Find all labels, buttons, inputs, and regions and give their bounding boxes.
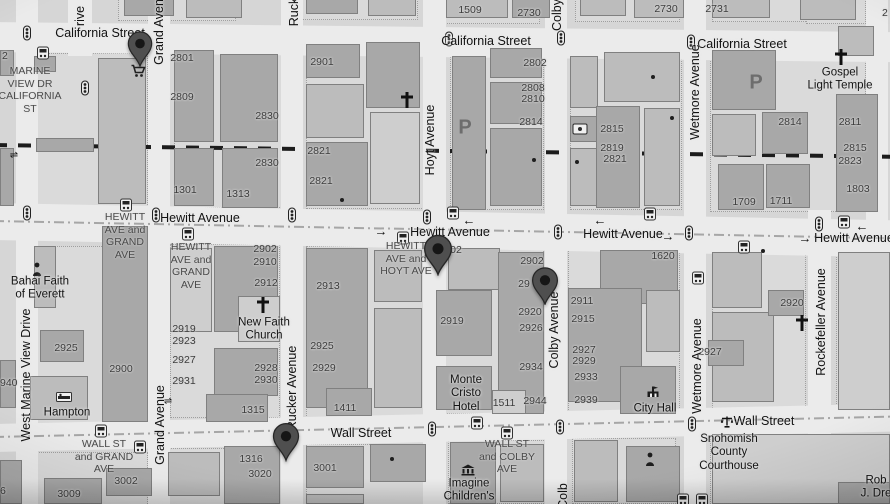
building-label: 1711 [770,195,793,207]
building [36,138,94,152]
building [800,0,856,20]
building-label: 2931 [172,375,195,387]
bus-stop-icon[interactable] [696,494,708,504]
building-label: 2815 [843,142,866,154]
map-canvas[interactable]: California StreetCalifornia StreetCalifo… [0,0,890,504]
building [0,460,22,504]
poi-label-line: Bahai Faith [11,276,69,289]
building-label: 2811 [839,116,862,128]
area-label-line: HEWITT [171,241,212,254]
building [580,0,626,16]
building-label: 2730 [654,3,677,15]
building [220,54,278,142]
building [570,148,598,206]
street-label: Rucker Avenue [285,346,299,431]
building-label: 2830 [255,157,278,169]
street-label: Wall Street [734,414,795,428]
church-cross-icon[interactable] [400,91,414,109]
poi-label-line: Hampton [44,406,91,419]
building-label: 1313 [226,188,249,200]
poi-label: New FaithChurch [238,317,290,344]
poi-label: RobJ. Dre [861,475,890,502]
poi-label-line: Children's [444,491,495,504]
building-label: 3001 [313,462,336,474]
poi-label-line: Rob [861,475,890,488]
area-label-line: WALL ST [479,438,535,451]
building-label: 2821 [309,175,332,187]
street-label: California Street [441,34,531,48]
street-label: rive [73,6,87,26]
traffic-light-icon [423,210,431,225]
building-label: 2810 [521,93,544,105]
poi-label-line: Light Temple [808,80,873,93]
building-label: 1315 [241,404,264,416]
building-label: 2929 [312,362,335,374]
traffic-light-icon [152,208,160,223]
building-label: 2814 [778,116,801,128]
poi-label-line: Hotel [450,401,482,414]
poi-label: Bahai Faithof Everett [11,276,69,303]
traffic-light-icon [288,208,296,223]
building-label: 2925 [310,340,333,352]
dot-icon [651,75,656,80]
bus-stop-icon[interactable] [37,47,49,60]
area-label-line: CALIFORNIA [0,90,62,103]
poi-label-line: J. Dre [861,488,890,501]
building-label: 2802 [523,57,546,69]
poi-label-line: Cristo [450,387,482,400]
poi-label: ImagineChildren's [444,478,495,504]
building-label: 2 [882,7,888,19]
area-label-line: AVE and [171,253,212,266]
area-label: MARINEVIEW DRCALIFORNIAST [0,65,62,115]
poi-label-line: Imagine [444,478,495,491]
area-label-line: and COLBY [479,451,535,464]
poi-label-line: Church [238,330,290,343]
parking-label: P [749,72,762,95]
building-label: 2925 [54,342,77,354]
building-label: 2915 [571,313,594,325]
building [712,50,776,110]
person-icon[interactable] [645,452,656,466]
area-label-line: ST [0,103,62,116]
building [374,308,422,408]
poi-label: City Hall [634,402,677,415]
building [370,112,420,204]
building-label: 2934 [519,361,542,373]
building-label: 1509 [458,4,481,16]
building [644,108,680,206]
building-label: 1620 [651,250,674,262]
building-label: 1803 [846,183,869,195]
city-hall-icon[interactable] [646,385,661,398]
poi-label-line: Snohomish [699,433,758,446]
area-label-line: WALL ST [75,438,133,451]
church-cross-icon[interactable] [834,48,848,66]
arrow-icon: → [662,230,675,243]
area-label-line: AVE [171,279,212,292]
bus-stop-icon[interactable] [838,216,850,229]
street-label: Rockefeller Avenue [814,268,828,375]
building-label: 2910 [253,256,276,268]
building-label: 2912 [254,277,277,289]
building-label: 1316 [239,453,262,465]
street-label: California Street [697,37,787,51]
traffic-light-icon [815,217,823,232]
traffic-light-icon [554,225,562,240]
poi-label-line: City Hall [634,402,677,415]
building [646,290,680,352]
street-label: West Marine View Drive [19,309,33,442]
building-label: 2933 [574,371,597,383]
arrow-icon: → [799,232,812,245]
building-label: 2809 [170,91,193,103]
building [604,52,680,102]
building [574,440,618,502]
poi-label-line: Monte [450,374,482,387]
poi-label-line: of Everett [11,289,69,302]
area-label-line: AVE [75,463,133,476]
area-label-line: HEWITT [105,211,146,224]
poi-label: GospelLight Temple [808,67,873,94]
building [838,252,890,410]
traffic-light-icon [23,206,31,221]
building [490,128,542,206]
area-label-line: AVE [105,249,146,262]
building-label: 1301 [173,184,196,196]
building-label: 2821 [603,153,626,165]
traffic-light-icon [556,420,564,435]
building-label: 2911 [571,295,594,307]
area-label-line: and GRAND [75,451,133,464]
poi-label-line: County [699,446,758,459]
building-label: 6 [0,485,6,497]
dot-icon [575,160,580,165]
building-label: 1709 [732,196,755,208]
street-label: Grand Aven [152,0,166,65]
bus-stop-icon[interactable] [677,494,689,504]
poi-label-line: Gospel [808,67,873,80]
poi-label-line: New Faith [238,317,290,330]
bus-stop-icon[interactable] [182,228,194,241]
arrow-icon: ← [594,214,607,227]
arrow-icon: → [375,225,388,238]
area-label-line: AVE [479,463,535,476]
street-label: Hoyt Avenue [423,105,437,176]
map-pin[interactable] [271,422,301,462]
person-icon[interactable] [32,262,43,276]
scales-icon[interactable] [720,416,734,429]
building-label: 2920 [518,306,541,318]
dot-icon [670,116,675,121]
mail-icon[interactable] [573,124,588,135]
building-label: 3009 [57,488,80,500]
bus-stop-icon[interactable] [120,199,132,212]
building-label: 2913 [316,280,339,292]
area-label-line: GRAND [105,236,146,249]
traffic-light-icon [688,417,696,432]
building [98,58,146,204]
dot-icon [340,198,345,203]
parking-label: P [458,117,471,140]
building-label: 2926 [519,322,542,334]
traffic-light-icon [428,422,436,437]
bus-stop-icon[interactable] [692,272,704,285]
building-label: 2730 [517,7,540,19]
building-label: 1511 [493,397,516,409]
building [168,452,220,496]
museum-icon[interactable] [461,464,476,476]
building-label: 2930 [254,374,277,386]
building-label: 2731 [705,3,728,15]
poi-label: MonteCristoHotel [450,374,482,414]
building-label: 2900 [109,363,132,375]
building-label: 2944 [523,395,546,407]
bus-stop-icon[interactable] [134,441,146,454]
poi-label: SnohomishCountyCourthouse [699,433,758,473]
building-label: 2919 [440,315,463,327]
building-label: 2920 [780,297,803,309]
street-label: Wetmore Avenue [688,44,702,139]
building-label: 2919 [172,323,195,335]
building-label: 2939 [574,394,597,406]
area-label-line: VIEW DR [0,77,62,90]
building [370,444,426,482]
building [124,0,174,16]
dot-icon [532,158,537,163]
traffic-light-icon [557,31,565,46]
area-label: WALL STand COLBYAVE [479,438,535,476]
building-label: 940 [0,377,18,389]
building-label: 2923 [172,335,195,347]
traffic-light-icon [23,26,31,41]
building [712,114,756,156]
building [186,0,242,18]
building-label: 2928 [254,362,277,374]
street-label: Wetmore Avenue [690,318,704,413]
area-label: HEWITTAVE andGRANDAVE [105,211,146,261]
building-label: 2823 [838,155,861,167]
area-label: WALL STand GRANDAVE [75,438,133,476]
building-label: 2801 [170,52,193,64]
poi-label-line: Courthouse [699,460,758,473]
building-label: 2902 [253,243,276,255]
building [174,148,214,206]
street-label: Ruck [287,0,301,26]
map-pin[interactable] [422,234,454,276]
street-label: Hewitt Avenue [814,231,890,245]
bus-stop-icon[interactable] [447,207,459,220]
poi-label: Hampton [44,406,91,419]
bed-icon[interactable] [56,392,72,402]
building-label: 2815 [600,123,623,135]
building-label: 2927 [172,354,195,366]
street-label: Colby [550,0,564,31]
church-cross-icon[interactable] [795,314,809,332]
building-label: 3020 [248,468,271,480]
building [306,494,364,504]
bus-stop-icon[interactable] [95,425,107,438]
street-label: Colb [556,483,570,504]
street-label: Hewitt Avenue [583,227,663,241]
dot-icon [761,249,766,254]
building-label: 3002 [114,475,137,487]
building-label: 2901 [310,56,333,68]
area-label-line: GRAND [171,266,212,279]
building-label: 29 [518,278,530,290]
street-label: Grand Avenue [153,385,167,465]
traffic-light-icon [685,226,693,241]
bus-stop-icon[interactable] [471,417,483,430]
street-label: Wall Street [331,426,392,440]
building-label: 2821 [307,145,330,157]
building [306,0,358,14]
building [368,0,416,16]
building [306,248,368,408]
bus-stop-icon[interactable] [644,208,656,221]
traffic-light-icon [81,81,89,96]
building-label: 2814 [519,116,542,128]
building-label: 2 [2,50,8,62]
map-pin[interactable] [530,267,560,305]
building-label: 1411 [334,402,357,414]
building-label: 2902 [520,255,543,267]
building [712,252,762,308]
street-label: Hewitt Avenue [160,211,240,225]
building-label: 2929 [572,355,595,367]
swap-icon: ⇌ [10,151,18,161]
building [306,84,364,138]
area-label: HEWITTAVE andGRANDAVE [171,241,212,291]
building-label: 2830 [255,110,278,122]
church-cross-icon[interactable] [256,296,270,314]
map-pin[interactable] [126,31,154,67]
area-label-line: MARINE [0,65,62,78]
bus-stop-icon[interactable] [738,241,750,254]
dot-icon [390,457,395,462]
area-label-line: AVE and [105,223,146,236]
building [570,56,598,108]
